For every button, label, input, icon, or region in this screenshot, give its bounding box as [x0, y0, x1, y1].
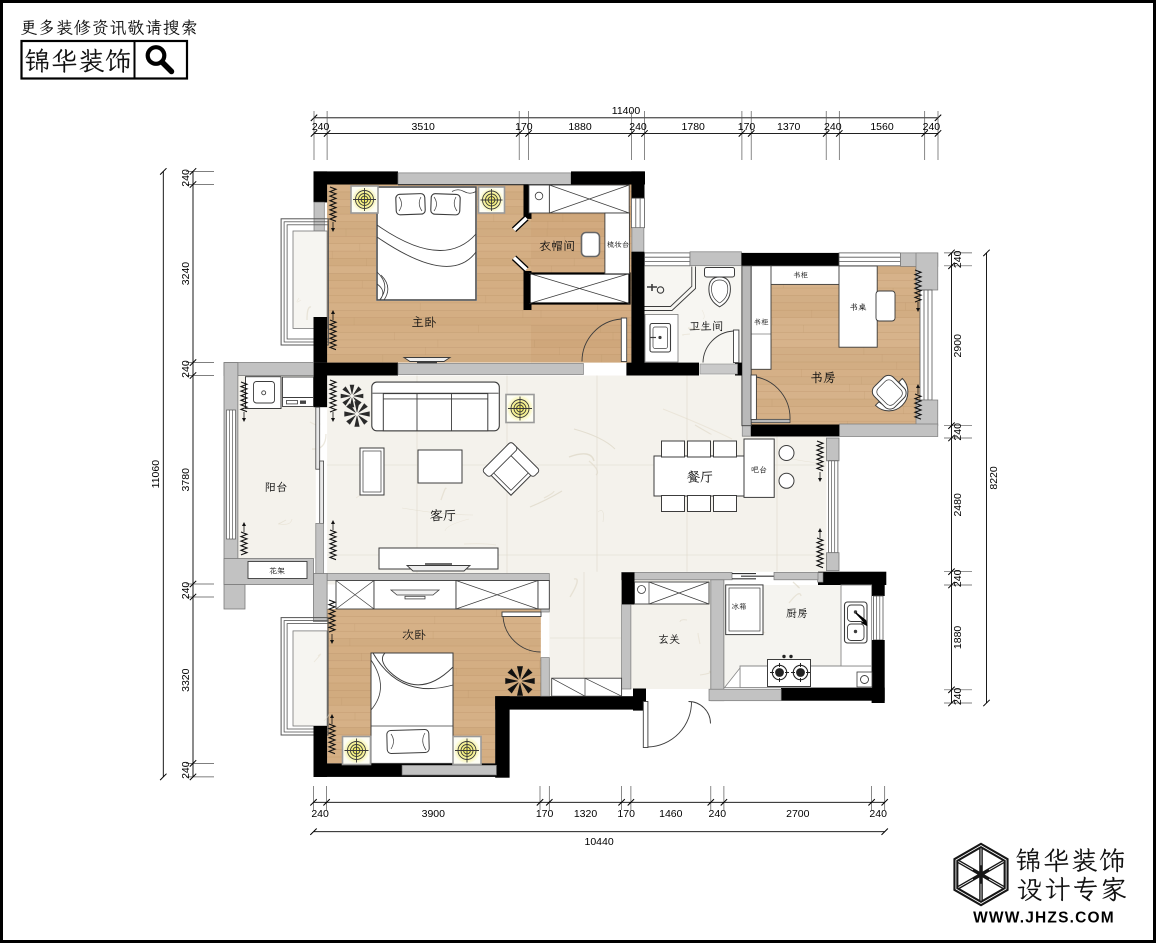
- svg-text:1460: 1460: [659, 808, 683, 820]
- svg-text:170: 170: [515, 121, 533, 133]
- svg-text:240: 240: [180, 169, 192, 187]
- svg-text:240: 240: [923, 121, 941, 133]
- svg-text:1560: 1560: [870, 121, 894, 133]
- svg-text:240: 240: [312, 121, 330, 133]
- svg-text:3780: 3780: [180, 468, 192, 492]
- svg-text:8220: 8220: [988, 466, 1000, 490]
- svg-text:2900: 2900: [952, 334, 964, 358]
- svg-text:170: 170: [738, 121, 756, 133]
- svg-text:240: 240: [629, 121, 647, 133]
- svg-text:240: 240: [180, 761, 192, 779]
- svg-text:240: 240: [709, 808, 727, 820]
- svg-text:3900: 3900: [422, 808, 446, 820]
- svg-text:1880: 1880: [568, 121, 592, 133]
- svg-text:11400: 11400: [612, 105, 641, 117]
- svg-text:3320: 3320: [180, 668, 192, 692]
- svg-text:11060: 11060: [150, 460, 162, 489]
- svg-text:3240: 3240: [180, 262, 192, 286]
- svg-text:2480: 2480: [952, 493, 964, 517]
- svg-text:170: 170: [536, 808, 554, 820]
- svg-text:240: 240: [952, 423, 964, 441]
- svg-text:240: 240: [952, 250, 964, 268]
- svg-text:WWW.JHZS.COM: WWW.JHZS.COM: [973, 910, 1115, 927]
- svg-text:3510: 3510: [412, 121, 436, 133]
- svg-text:240: 240: [952, 569, 964, 587]
- svg-text:10440: 10440: [584, 836, 613, 848]
- svg-text:240: 240: [180, 582, 192, 600]
- svg-text:170: 170: [617, 808, 635, 820]
- svg-text:240: 240: [311, 808, 329, 820]
- svg-text:1780: 1780: [682, 121, 706, 133]
- svg-text:2700: 2700: [786, 808, 810, 820]
- svg-text:1320: 1320: [574, 808, 598, 820]
- svg-text:1880: 1880: [952, 626, 964, 650]
- svg-text:240: 240: [824, 121, 842, 133]
- svg-text:1370: 1370: [777, 121, 801, 133]
- svg-text:240: 240: [952, 687, 964, 705]
- svg-text:240: 240: [180, 360, 192, 378]
- svg-text:240: 240: [869, 808, 887, 820]
